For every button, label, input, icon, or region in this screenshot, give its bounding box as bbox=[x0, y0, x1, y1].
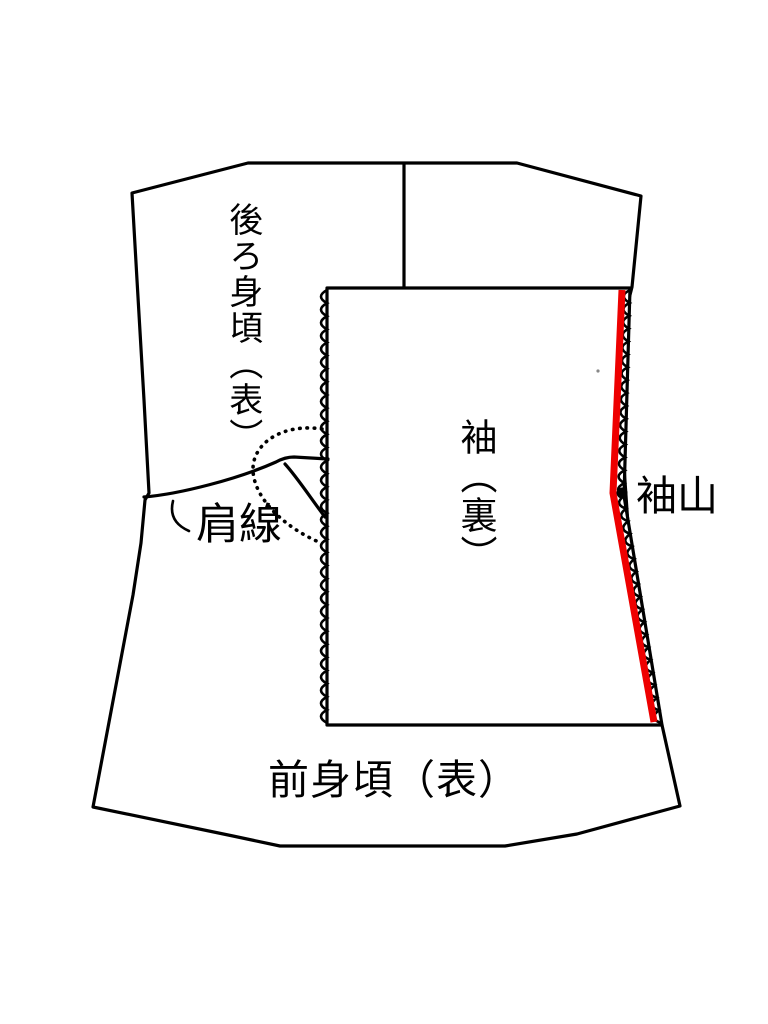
label-back-body: 後ろ身頃（表） bbox=[224, 202, 261, 454]
label-front-body: 前身頃（表） bbox=[268, 758, 520, 802]
stray-speck bbox=[596, 369, 599, 372]
sleeve-cap-point-dot bbox=[617, 488, 628, 499]
sewing-diagram: 後ろ身頃（表） 袖（裏） 肩線 袖山 前身頃（表） bbox=[0, 0, 768, 1024]
label-sleeve: 袖（裏） bbox=[455, 418, 495, 574]
label-sleeve-cap: 袖山 bbox=[636, 474, 718, 518]
label-shoulder-line: 肩線 bbox=[196, 502, 282, 548]
